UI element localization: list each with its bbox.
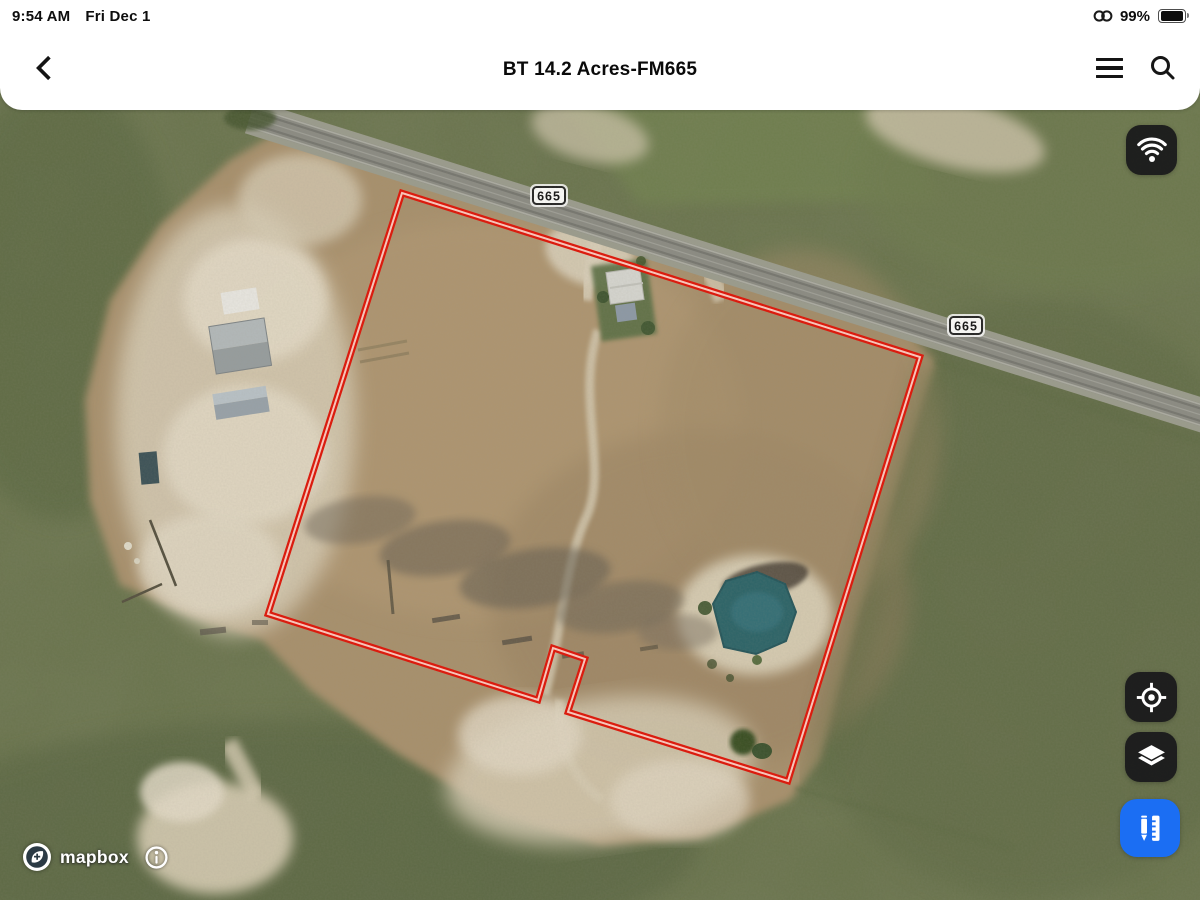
nav-bar: BT 14.2 Acres-FM665 xyxy=(0,30,1200,110)
layers-icon xyxy=(1136,744,1167,771)
hotspot-link-icon xyxy=(1092,8,1114,24)
status-time: 9:54 AM xyxy=(12,8,70,25)
chevron-left-icon xyxy=(33,54,55,82)
app-screen: 665 665 9:54 AM Fri Dec 1 99% xyxy=(0,0,1200,900)
page-title: BT 14.2 Acres-FM665 xyxy=(0,59,1200,81)
wifi-button[interactable] xyxy=(1126,125,1177,175)
search-button[interactable] xyxy=(1146,50,1178,84)
battery-icon xyxy=(1158,9,1186,24)
map-attribution: mapbox xyxy=(22,842,170,872)
hamburger-icon xyxy=(1096,58,1123,61)
status-bar: 9:54 AM Fri Dec 1 99% xyxy=(0,0,1200,30)
search-icon xyxy=(1149,54,1176,81)
wifi-icon xyxy=(1136,136,1168,164)
info-icon xyxy=(143,844,170,871)
draw-tools-button[interactable] xyxy=(1120,799,1180,857)
satellite-map[interactable]: 665 665 xyxy=(0,0,1200,900)
crosshair-icon xyxy=(1136,682,1167,713)
pencil-ruler-icon xyxy=(1135,813,1166,844)
satellite-grain xyxy=(0,0,1200,900)
app-header: 9:54 AM Fri Dec 1 99% BT 14.2 Acres-FM66… xyxy=(0,0,1200,110)
mapbox-wordmark[interactable]: mapbox xyxy=(60,847,129,868)
back-button[interactable] xyxy=(26,48,62,88)
status-date: Fri Dec 1 xyxy=(85,8,150,25)
info-button[interactable] xyxy=(143,844,170,871)
battery-percent-label: 99% xyxy=(1120,8,1150,25)
locate-button[interactable] xyxy=(1125,672,1177,722)
layers-button[interactable] xyxy=(1125,732,1177,782)
mapbox-logo-icon[interactable] xyxy=(22,842,52,872)
menu-button[interactable] xyxy=(1096,54,1126,82)
